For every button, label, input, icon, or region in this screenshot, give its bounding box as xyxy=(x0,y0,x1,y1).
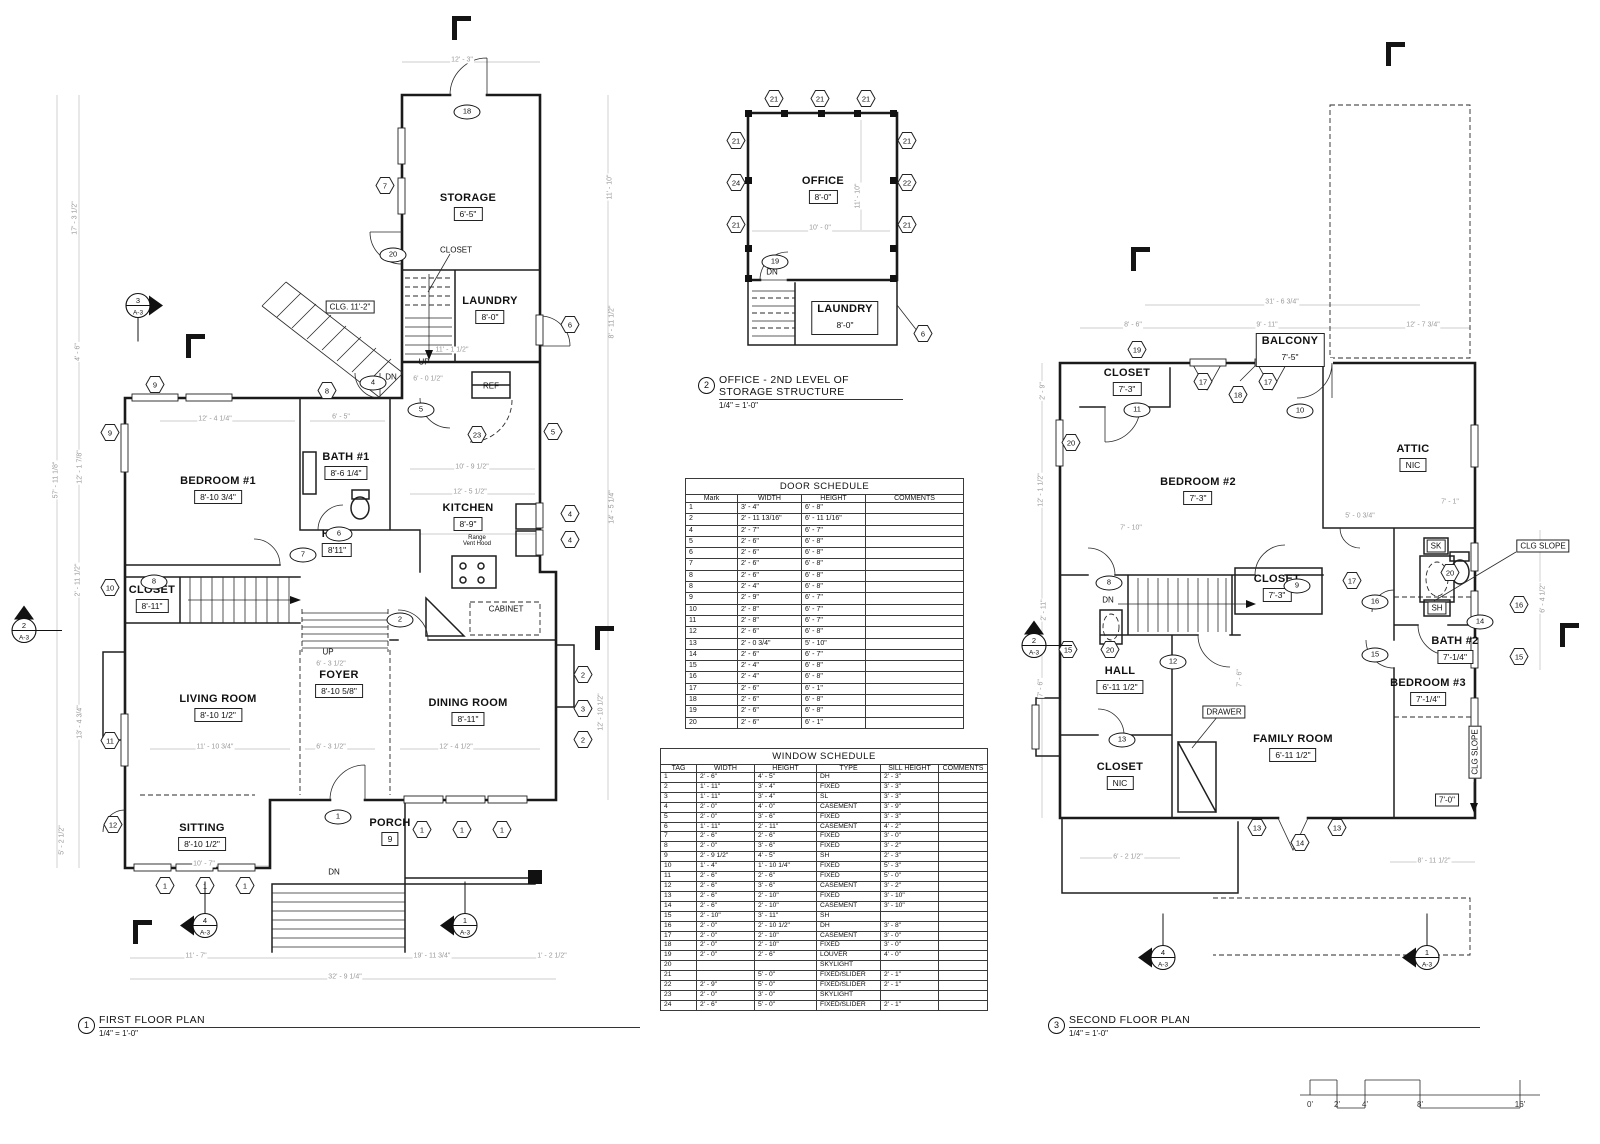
room-label-attic: ATTICNIC xyxy=(1396,443,1429,473)
svg-text:15: 15 xyxy=(1515,653,1523,662)
table-cell xyxy=(939,782,988,792)
plan-title-name: OFFICE - 2ND LEVEL OF STORAGE STRUCTURE xyxy=(719,374,903,400)
table-cell: 3' - 8" xyxy=(881,921,939,931)
table-cell: 2' - 0 3/4" xyxy=(738,638,802,649)
table-cell: SH xyxy=(817,852,881,862)
table-cell: 3' - 0" xyxy=(881,941,939,951)
svg-text:1: 1 xyxy=(163,882,167,891)
svg-text:23: 23 xyxy=(473,431,481,440)
svg-text:22: 22 xyxy=(903,179,911,188)
svg-text:1: 1 xyxy=(420,826,424,835)
door-tag-oval: 8 xyxy=(1096,576,1123,591)
table-cell: 2' - 0" xyxy=(697,842,755,852)
note-label: SH xyxy=(1427,602,1446,615)
table-cell: FIXED xyxy=(817,862,881,872)
table-row: 22' - 11 13/16"6' - 11 1/16" xyxy=(686,514,964,525)
room-dim: NIC xyxy=(1107,776,1134,790)
table-cell: DH xyxy=(817,773,881,783)
table-cell: 2' - 6" xyxy=(755,951,817,961)
room-dim: 8'-10 1/2" xyxy=(194,708,242,722)
svg-text:4: 4 xyxy=(568,536,572,545)
table-cell xyxy=(866,649,964,660)
room-name: LAUNDRY xyxy=(462,295,517,307)
table-row: 182' - 6"6' - 8" xyxy=(686,695,964,706)
table-cell: 2' - 0" xyxy=(697,941,755,951)
table-cell: 3' - 0" xyxy=(755,990,817,1000)
table-cell: 6' - 7" xyxy=(802,593,866,604)
window-tag-hexagon: 4 xyxy=(560,531,580,554)
table-cell: 2' - 6" xyxy=(738,627,802,638)
svg-text:21: 21 xyxy=(816,95,824,104)
table-cell xyxy=(939,1000,988,1010)
window-tag-hexagon: 12 xyxy=(103,816,123,839)
table-cell xyxy=(866,582,964,593)
svg-text:4: 4 xyxy=(568,510,572,519)
table-row: 82' - 0"3' - 6"FIXED3' - 2" xyxy=(661,842,988,852)
dimension-label: 12' - 1 7/8" xyxy=(77,449,84,484)
window-tag-hexagon: 3 xyxy=(573,700,593,723)
column-header: Mark xyxy=(686,495,738,503)
dimension-label: 10' - 0" xyxy=(808,225,832,232)
table-cell: CASEMENT xyxy=(817,931,881,941)
window-tag-hexagon: 15 xyxy=(1058,641,1078,664)
table-cell: 2' - 4" xyxy=(738,661,802,672)
room-dim: 8'-11" xyxy=(135,599,168,613)
window-tag-hexagon: 5 xyxy=(543,423,563,446)
column-header: HEIGHT xyxy=(802,495,866,503)
table-cell: 6' - 8" xyxy=(802,570,866,581)
room-name: ATTIC xyxy=(1396,443,1429,455)
dimension-label: 19' - 11 3/4" xyxy=(413,953,452,960)
window-tag-hexagon: 2 xyxy=(573,731,593,754)
table-cell: 6' - 1" xyxy=(802,683,866,694)
table-cell xyxy=(866,683,964,694)
table-row: 62' - 6"6' - 8" xyxy=(686,548,964,559)
table-cell: 2' - 6" xyxy=(738,695,802,706)
column-header: COMMENTS xyxy=(866,495,964,503)
plan-title-number: 1 xyxy=(78,1017,95,1034)
table-row: 52' - 0"3' - 6"FIXED3' - 3" xyxy=(661,812,988,822)
dimension-label: 4' - 6" xyxy=(75,342,82,362)
room-label-porch: PORCH9 xyxy=(369,817,410,847)
table-cell: 3' - 3" xyxy=(881,792,939,802)
table-cell: 10 xyxy=(661,862,697,872)
table-cell: 2' - 1" xyxy=(881,971,939,981)
table-cell: 21 xyxy=(661,971,697,981)
window-tag-hexagon: 7 xyxy=(375,177,395,200)
table-cell: 3' - 6" xyxy=(755,881,817,891)
table-cell xyxy=(866,638,964,649)
table-cell xyxy=(939,862,988,872)
door-tag-oval: 7 xyxy=(290,548,317,563)
table-cell xyxy=(939,822,988,832)
table-cell: 1' - 11" xyxy=(697,792,755,802)
keyplan-flag-icon xyxy=(133,920,138,944)
table-cell: 2' - 10" xyxy=(755,931,817,941)
column-header: TYPE xyxy=(817,765,881,773)
note-label: CLG SLOPE xyxy=(1469,725,1482,778)
table-cell: FIXED xyxy=(817,782,881,792)
section-marker: 3A-3 xyxy=(116,284,160,333)
room-label-closet: CLOSET7'-3" xyxy=(1104,367,1150,397)
table-row: 31' - 11"3' - 4"SL3' - 3" xyxy=(661,792,988,802)
section-marker: 2A-3 xyxy=(1012,624,1056,673)
room-dim: 8'11" xyxy=(322,543,352,557)
table-cell: 3' - 0" xyxy=(881,832,939,842)
table-cell: 1 xyxy=(686,503,738,514)
table-cell: 16 xyxy=(661,921,697,931)
room-dim: 7'-1/4" xyxy=(1437,650,1473,664)
svg-text:1: 1 xyxy=(500,826,504,835)
table-cell: 7 xyxy=(686,559,738,570)
dimension-label: 57' - 11 1/8" xyxy=(53,461,60,500)
keyplan-flag-icon xyxy=(1131,247,1136,271)
table-cell: 5 xyxy=(686,536,738,547)
svg-text:5: 5 xyxy=(551,428,555,437)
table-cell: 3' - 10" xyxy=(881,891,939,901)
svg-text:A-3: A-3 xyxy=(1422,962,1433,969)
table-cell: 10 xyxy=(686,604,738,615)
table-cell: 2' - 8" xyxy=(738,615,802,626)
column-header: COMMENTS xyxy=(939,765,988,773)
table-row: 42' - 0"4' - 0"CASEMENT3' - 9" xyxy=(661,802,988,812)
door-tag-oval: 20 xyxy=(380,248,407,263)
table-cell: 1' - 4" xyxy=(697,862,755,872)
svg-text:21: 21 xyxy=(770,95,778,104)
window-tag-hexagon: 1 xyxy=(492,821,512,844)
section-marker: 2A-3 xyxy=(2,609,46,658)
room-name: KITCHEN xyxy=(443,502,494,514)
window-tag-hexagon: 1 xyxy=(235,877,255,900)
table-cell xyxy=(939,961,988,971)
table-cell: 2' - 6" xyxy=(738,536,802,547)
dimension-label: 8' - 11 1/2" xyxy=(609,305,616,340)
table-cell: 2' - 6" xyxy=(697,901,755,911)
table-cell: 2' - 11 13/16" xyxy=(738,514,802,525)
table-row: 172' - 6"6' - 1" xyxy=(686,683,964,694)
table-cell: 3' - 3" xyxy=(881,782,939,792)
table-cell xyxy=(939,981,988,991)
table-cell: 8 xyxy=(686,570,738,581)
note-label: UP xyxy=(418,358,429,367)
door-schedule: DOOR SCHEDULEMarkWIDTHHEIGHTCOMMENTS13' … xyxy=(685,478,964,729)
note-label: SK xyxy=(1427,540,1446,553)
section-marker: 4A-3 xyxy=(183,904,227,953)
table-cell: FIXED xyxy=(817,872,881,882)
room-dim: 8'-10 5/8" xyxy=(315,684,363,698)
room-name: STORAGE xyxy=(440,192,496,204)
table-cell: 2' - 8" xyxy=(738,604,802,615)
table-cell xyxy=(939,911,988,921)
svg-text:21: 21 xyxy=(903,137,911,146)
table-cell: 5' - 0" xyxy=(755,981,817,991)
table-row: 122' - 6"3' - 6"CASEMENT3' - 2" xyxy=(661,881,988,891)
dimension-label: 2' - 11 1/2" xyxy=(75,563,82,598)
table-cell xyxy=(866,548,964,559)
door-tag-oval: 6 xyxy=(326,527,353,542)
table-row: 102' - 8"6' - 7" xyxy=(686,604,964,615)
table-cell: 2 xyxy=(686,514,738,525)
dimension-label: 32' - 9 1/4" xyxy=(327,974,362,981)
scale-bar-label: 2' xyxy=(1334,1100,1340,1109)
svg-text:18: 18 xyxy=(1234,391,1242,400)
table-cell: 2' - 6" xyxy=(697,872,755,882)
svg-text:16: 16 xyxy=(1515,601,1523,610)
svg-text:6: 6 xyxy=(568,321,572,330)
dimension-label: 9' - 11" xyxy=(1255,322,1278,329)
room-label-kitchen: KITCHEN8'-9" xyxy=(443,502,494,532)
table-cell: 12 xyxy=(661,881,697,891)
svg-text:19: 19 xyxy=(1133,346,1141,355)
table-cell: 4 xyxy=(661,802,697,812)
table-row: 152' - 10"3' - 11"SH xyxy=(661,911,988,921)
table-cell: 13 xyxy=(686,638,738,649)
window-tag-hexagon: 9 xyxy=(100,424,120,447)
column-header: SILL HEIGHT xyxy=(881,765,939,773)
window-tag-hexagon: 24 xyxy=(726,174,746,197)
table-cell: 5' - 3" xyxy=(881,862,939,872)
section-marker: 4A-3 xyxy=(1141,936,1185,985)
table-cell: 6' - 8" xyxy=(802,661,866,672)
window-tag-hexagon: 21 xyxy=(764,90,784,113)
table-cell xyxy=(866,536,964,547)
window-tag-hexagon: 19 xyxy=(1127,341,1147,364)
table-cell xyxy=(697,961,755,971)
note-label: DRAWER xyxy=(1202,706,1245,719)
svg-text:2: 2 xyxy=(581,671,585,680)
table-row: 242' - 6"5' - 0"FIXED/SLIDER2' - 1" xyxy=(661,1000,988,1010)
table-cell: 2' - 10" xyxy=(755,891,817,901)
table-cell: 2' - 11" xyxy=(755,822,817,832)
window-tag-hexagon: 20 xyxy=(1061,434,1081,457)
dimension-label: 7' - 10" xyxy=(1119,525,1143,532)
section-marker: 1A-3 xyxy=(1405,936,1449,985)
table-cell xyxy=(939,901,988,911)
table-row: 192' - 6"6' - 8" xyxy=(686,706,964,717)
svg-text:17: 17 xyxy=(1348,577,1356,586)
door-tag-oval: 14 xyxy=(1467,615,1494,630)
room-name: DINING ROOM xyxy=(428,697,507,709)
table-cell: 15 xyxy=(686,661,738,672)
table-cell: 2' - 0" xyxy=(697,951,755,961)
room-dim: 8'-9" xyxy=(454,517,483,531)
svg-text:24: 24 xyxy=(732,179,740,188)
room-name: HALL xyxy=(1096,665,1143,677)
door-tag-oval: 15 xyxy=(1362,648,1389,663)
table-cell: 14 xyxy=(661,901,697,911)
table-cell: 1 xyxy=(661,773,697,783)
dimension-label: 12' - 4 1/2" xyxy=(438,744,473,751)
table-cell: 2' - 6" xyxy=(738,706,802,717)
note-label: CABINET xyxy=(489,605,524,614)
room-name: LIVING ROOM xyxy=(179,693,256,705)
table-cell: CASEMENT xyxy=(817,901,881,911)
table-cell: 6' - 8" xyxy=(802,672,866,683)
table-row: 21' - 11"3' - 4"FIXED3' - 3" xyxy=(661,782,988,792)
svg-text:8: 8 xyxy=(325,387,329,396)
room-label-storage: STORAGE6'-5" xyxy=(440,192,496,222)
table-row: 82' - 6"6' - 8" xyxy=(686,570,964,581)
room-label-sitting: SITTING8'-10 1/2" xyxy=(178,822,226,852)
plan-title-scale: 1/4" = 1'-0" xyxy=(99,1028,640,1038)
table-row: 232' - 0"3' - 0"SKYLIGHT xyxy=(661,990,988,1000)
door-tag-oval: 18 xyxy=(454,105,481,120)
svg-text:10: 10 xyxy=(106,584,114,593)
room-label-bath-1: BATH #18'-6 1/4" xyxy=(322,451,369,481)
scale-bar-label: 8' xyxy=(1417,1100,1423,1109)
svg-text:15: 15 xyxy=(1064,646,1072,655)
table-cell: 2' - 0" xyxy=(697,931,755,941)
table-cell: 6' - 7" xyxy=(802,604,866,615)
table-row: 82' - 4"6' - 8" xyxy=(686,582,964,593)
dimension-label: 5' - 2 1/2" xyxy=(59,824,66,856)
note-label: Range Vent Hood xyxy=(463,535,491,547)
plan-title-scale: 1/4" = 1'-0" xyxy=(1069,1028,1480,1038)
room-dim: 8'-0" xyxy=(476,310,505,324)
room-name: CLOSET xyxy=(1104,367,1150,379)
dimension-label: 7' - 6" xyxy=(1237,668,1244,688)
table-cell: 5' - 0" xyxy=(755,1000,817,1010)
window-tag-hexagon: 18 xyxy=(1228,386,1248,409)
svg-text:2: 2 xyxy=(581,736,585,745)
svg-text:1: 1 xyxy=(463,916,467,925)
table-cell: FIXED xyxy=(817,832,881,842)
table-cell xyxy=(866,604,964,615)
table-cell: 20 xyxy=(686,717,738,728)
window-tag-hexagon: 6 xyxy=(560,316,580,339)
table-cell: SKYLIGHT xyxy=(817,990,881,1000)
room-label-laundry: LAUNDRY8'-0" xyxy=(462,295,517,325)
table-cell: 2' - 10" xyxy=(755,941,817,951)
table-cell: 6' - 8" xyxy=(802,503,866,514)
dimension-label: 12' - 3" xyxy=(450,57,474,64)
window-tag-hexagon: 9 xyxy=(145,376,165,399)
table-row: 182' - 0"2' - 10"FIXED3' - 0" xyxy=(661,941,988,951)
table-row: 61' - 11"2' - 11"CASEMENT4' - 2" xyxy=(661,822,988,832)
svg-text:21: 21 xyxy=(862,95,870,104)
plan-title-1: 1FIRST FLOOR PLAN1/4" = 1'-0" xyxy=(78,1014,640,1038)
table-cell: 3' - 4" xyxy=(738,503,802,514)
window-tag-hexagon: 1 xyxy=(452,821,472,844)
dimension-label: 5' - 0 3/4" xyxy=(1344,513,1376,520)
svg-text:11: 11 xyxy=(106,737,114,746)
table-cell: 6' - 8" xyxy=(802,706,866,717)
window-tag-hexagon: 20 xyxy=(1440,564,1460,587)
table-cell xyxy=(939,941,988,951)
table-cell xyxy=(939,792,988,802)
dimension-label: 12' - 7 3/4" xyxy=(1405,322,1440,329)
room-label-dining-room: DINING ROOM8'-11" xyxy=(428,697,507,727)
table-cell: 17 xyxy=(686,683,738,694)
dimension-label: 11' - 10 3/4" xyxy=(196,744,235,751)
table-cell xyxy=(881,961,939,971)
door-tag-oval: 10 xyxy=(1287,404,1314,419)
table-row: 162' - 0"2' - 10 1/2"DH3' - 8" xyxy=(661,921,988,931)
door-tag-oval: 2 xyxy=(387,613,414,628)
table-cell xyxy=(881,911,939,921)
window-schedule: WINDOW SCHEDULETAGWIDTHHEIGHTTYPESILL HE… xyxy=(660,748,988,1011)
keyplan-flag-icon xyxy=(1386,42,1391,66)
table-cell: 4' - 0" xyxy=(755,802,817,812)
table-row: 112' - 8"6' - 7" xyxy=(686,615,964,626)
table-cell: 1' - 10 1/4" xyxy=(755,862,817,872)
scale-bar-label: 4' xyxy=(1362,1100,1368,1109)
table-cell: 22 xyxy=(661,981,697,991)
dimension-label: 7' - 1" xyxy=(1440,499,1460,506)
svg-text:21: 21 xyxy=(903,221,911,230)
dimension-label: 6' - 0 1/2" xyxy=(412,376,444,383)
door-tag-oval: 8 xyxy=(141,575,168,590)
window-tag-hexagon: 6 xyxy=(913,325,933,348)
table-cell xyxy=(939,881,988,891)
table-cell xyxy=(939,802,988,812)
door-tag-oval: 11 xyxy=(1124,403,1151,418)
schedule-title: WINDOW SCHEDULE xyxy=(661,749,988,765)
table-cell: 19 xyxy=(686,706,738,717)
room-dim: 7'-1/4" xyxy=(1410,692,1446,706)
table-cell: 6' - 7" xyxy=(802,649,866,660)
dimension-label: 6' - 3 1/2" xyxy=(315,744,347,751)
table-cell: 14 xyxy=(686,649,738,660)
note-label: 7'-0" xyxy=(1435,794,1459,807)
table-cell: 13 xyxy=(661,891,697,901)
dimension-label: 10' - 9 1/2" xyxy=(454,464,489,471)
svg-text:A-3: A-3 xyxy=(19,635,30,642)
window-tag-hexagon: 21 xyxy=(726,216,746,239)
table-cell: FIXED xyxy=(817,941,881,951)
table-cell: 6 xyxy=(686,548,738,559)
scale-bar-label: 16' xyxy=(1515,1100,1525,1109)
table-cell xyxy=(939,842,988,852)
dimension-label: 11' - 10" xyxy=(855,182,862,209)
svg-text:4: 4 xyxy=(1161,948,1165,957)
table-cell: 2' - 1" xyxy=(881,1000,939,1010)
table-cell xyxy=(939,773,988,783)
table-cell: 2' - 6" xyxy=(738,570,802,581)
table-cell: 3' - 3" xyxy=(881,812,939,822)
table-cell: 2' - 0" xyxy=(697,812,755,822)
table-cell xyxy=(866,593,964,604)
room-dim: 8'-0" xyxy=(809,190,838,204)
table-cell xyxy=(755,961,817,971)
table-cell xyxy=(866,570,964,581)
dimension-label: 11' - 10" xyxy=(607,173,614,200)
svg-text:20: 20 xyxy=(1106,646,1114,655)
table-row: 162' - 4"6' - 8" xyxy=(686,672,964,683)
room-dim: 9 xyxy=(382,832,399,846)
window-tag-hexagon: 13 xyxy=(1247,819,1267,842)
window-tag-hexagon: 1 xyxy=(412,821,432,844)
room-label-closet: CLOSETNIC xyxy=(1097,761,1143,791)
table-cell: 18 xyxy=(686,695,738,706)
window-tag-hexagon: 11 xyxy=(100,732,120,755)
dimension-label: 14' - 5 1/4" xyxy=(609,489,616,524)
table-row: 101' - 4"1' - 10 1/4"FIXED5' - 3" xyxy=(661,862,988,872)
table-cell: 2' - 10 1/2" xyxy=(755,921,817,931)
table-cell: 3' - 10" xyxy=(881,901,939,911)
dimension-label: 12' - 10 1/2" xyxy=(598,692,605,731)
svg-text:4: 4 xyxy=(203,916,207,925)
keyplan-flag-icon xyxy=(186,334,191,358)
table-cell: 2' - 9 1/2" xyxy=(697,852,755,862)
table-row: 92' - 9 1/2"4' - 5"SH2' - 3" xyxy=(661,852,988,862)
table-row: 142' - 6"2' - 10"CASEMENT3' - 10" xyxy=(661,901,988,911)
room-name: OFFICE xyxy=(802,175,844,187)
room-name: BATH #2 xyxy=(1431,635,1478,647)
table-cell: 2' - 0" xyxy=(697,921,755,931)
note-label: DN xyxy=(328,868,340,877)
table-cell xyxy=(697,971,755,981)
